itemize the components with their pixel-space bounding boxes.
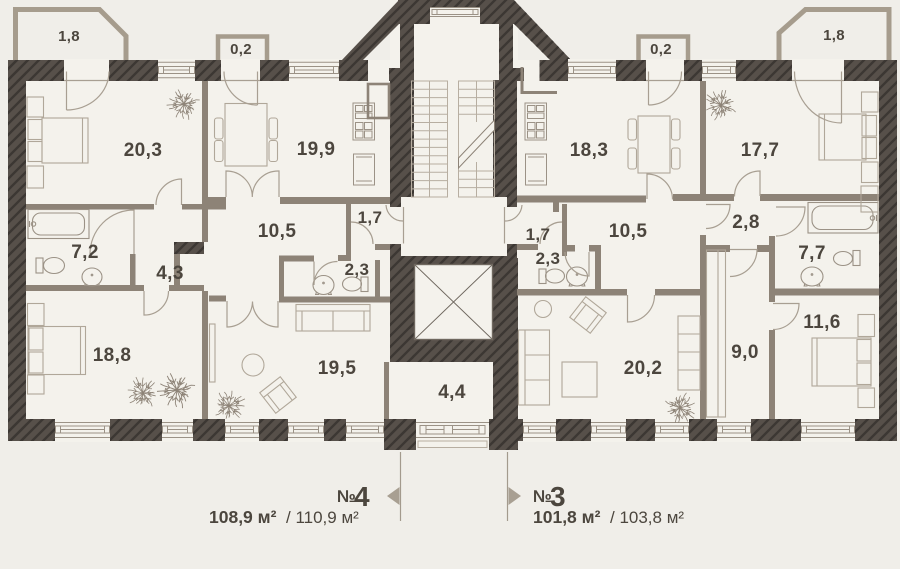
- svg-text:0,2: 0,2: [230, 41, 252, 58]
- svg-text:19,5: 19,5: [318, 358, 357, 379]
- svg-text:18,3: 18,3: [570, 140, 609, 161]
- svg-text:10,5: 10,5: [609, 221, 648, 242]
- svg-text:1,7: 1,7: [358, 208, 383, 227]
- svg-text:108,9 м²: 108,9 м²: [209, 507, 277, 527]
- svg-text:7,2: 7,2: [71, 242, 99, 263]
- svg-text:9,0: 9,0: [731, 342, 759, 363]
- svg-text:1,8: 1,8: [823, 27, 845, 44]
- svg-text:4,4: 4,4: [438, 382, 466, 403]
- svg-text:11,6: 11,6: [803, 312, 841, 333]
- svg-text:17,7: 17,7: [741, 140, 780, 161]
- svg-text:19,9: 19,9: [297, 139, 336, 160]
- svg-text:/ 110,9 м²: / 110,9 м²: [286, 508, 359, 527]
- svg-text:4,3: 4,3: [156, 263, 184, 284]
- svg-text:20,2: 20,2: [624, 358, 663, 379]
- svg-text:1,8: 1,8: [58, 28, 80, 45]
- svg-text:/ 103,8 м²: / 103,8 м²: [610, 508, 684, 527]
- svg-text:10,5: 10,5: [258, 221, 297, 242]
- svg-text:101,8 м²: 101,8 м²: [533, 507, 601, 527]
- svg-text:20,3: 20,3: [124, 140, 163, 161]
- svg-text:2,3: 2,3: [536, 249, 561, 268]
- svg-text:2,3: 2,3: [345, 260, 370, 279]
- svg-text:7,7: 7,7: [798, 243, 826, 264]
- svg-text:2,8: 2,8: [732, 212, 760, 233]
- svg-text:1,7: 1,7: [526, 225, 551, 244]
- svg-text:18,8: 18,8: [93, 345, 132, 366]
- svg-text:0,2: 0,2: [650, 41, 672, 58]
